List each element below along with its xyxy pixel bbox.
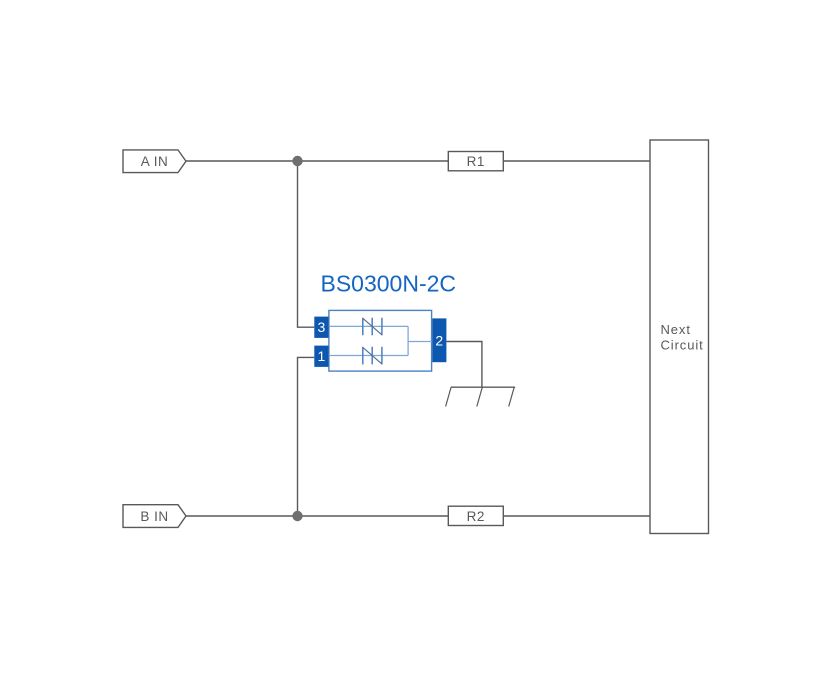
svg-text:R1: R1 [467, 154, 485, 169]
svg-text:Circuit: Circuit [661, 338, 704, 353]
svg-text:R2: R2 [467, 509, 485, 524]
svg-text:B IN: B IN [140, 509, 168, 524]
svg-text:3: 3 [318, 319, 326, 335]
svg-text:BS0300N-2C: BS0300N-2C [321, 271, 457, 297]
svg-text:1: 1 [318, 348, 326, 364]
svg-text:2: 2 [435, 332, 443, 348]
svg-text:Next: Next [661, 322, 691, 337]
svg-text:A IN: A IN [141, 154, 169, 169]
